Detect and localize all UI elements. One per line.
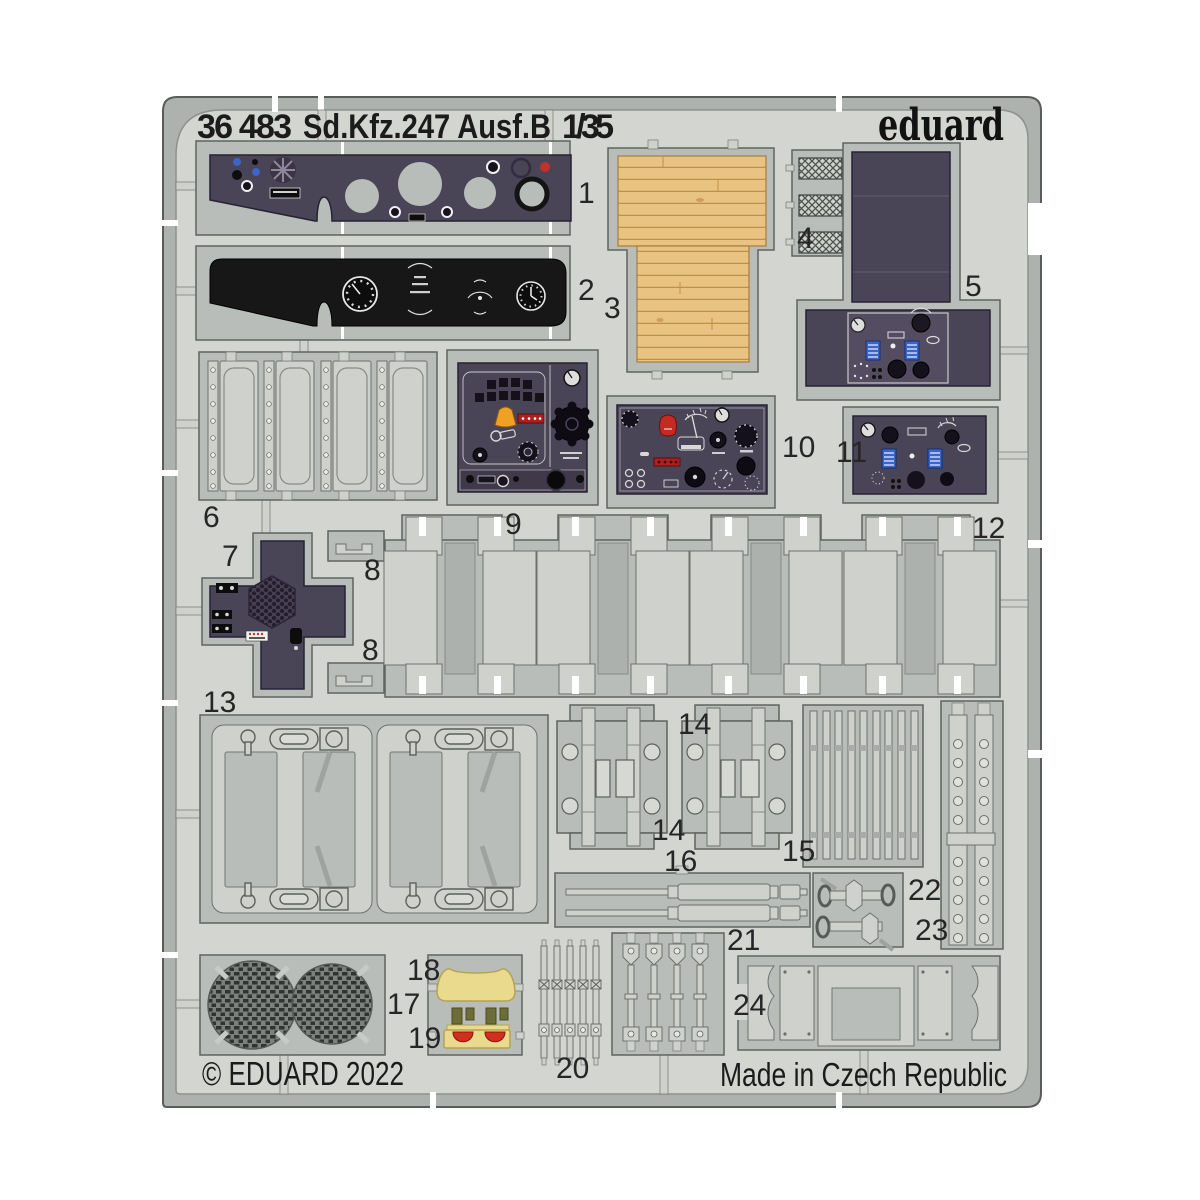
part-3-wood-panel: [608, 140, 774, 379]
part-10-radio-face: [607, 396, 775, 508]
made-in-text: Made in Czech Republic: [720, 1056, 1007, 1093]
part-13-seat-frames: [200, 715, 548, 923]
part-label-23: 23: [915, 914, 948, 947]
part-23-drilled-strips: [941, 701, 1003, 949]
part-12-rib-band: [384, 515, 1000, 697]
part-label-13: 13: [203, 686, 236, 719]
part-label-14-top: 14: [678, 708, 711, 741]
part-label-24: 24: [733, 989, 766, 1022]
part-label-17: 17: [387, 988, 420, 1021]
part-label-8-bottom: 8: [362, 634, 379, 667]
part-label-19: 19: [408, 1022, 441, 1055]
fret-sheet: 36 483 Sd.Kfz.247 Ausf.B 1/35 eduard: [160, 95, 1044, 1109]
part-label-11: 11: [836, 436, 867, 469]
part-label-20: 20: [556, 1052, 589, 1085]
part-label-18: 18: [407, 954, 440, 987]
part-1-instrument-panel: [196, 141, 571, 235]
part-24-bracket-plate: [726, 956, 1000, 1050]
part-21-pin-strips: [612, 933, 724, 1055]
fret-canvas: 36 483 Sd.Kfz.247 Ausf.B 1/35 eduard: [0, 0, 1200, 1200]
part-label-5: 5: [965, 270, 982, 303]
part-label-4: 4: [797, 222, 814, 255]
part-17-mesh-discs: [200, 955, 385, 1055]
part-9-radio-face: [447, 350, 598, 505]
part-15-slat-grille: [803, 705, 923, 867]
part-label-3: 3: [604, 292, 621, 325]
photoetch-sheet-image: 36 483 Sd.Kfz.247 Ausf.B 1/35 eduard: [0, 0, 1200, 1200]
parts-18-19-painted: [428, 955, 524, 1055]
part-label-2: 2: [578, 274, 595, 307]
part-label-9: 9: [505, 508, 522, 541]
part-22-lever-assemblies: [813, 873, 903, 950]
part-label-12: 12: [972, 512, 1005, 545]
copyright-text: © EDUARD 2022: [202, 1055, 404, 1092]
part-label-22: 22: [908, 874, 941, 907]
part-label-1: 1: [578, 177, 595, 210]
part-label-16: 16: [664, 845, 697, 878]
part-label-15: 15: [782, 835, 815, 868]
part-6-slat-panels: [199, 352, 437, 500]
part-label-21: 21: [727, 924, 760, 957]
part-2-instrument-panel-black: [196, 246, 570, 340]
part-label-10: 10: [782, 431, 815, 464]
part-label-7: 7: [222, 540, 239, 573]
part-label-8-top: 8: [364, 554, 381, 587]
part-label-14-bottom: 14: [652, 814, 685, 847]
part-18-yellow-backrest: [437, 969, 515, 1001]
part-label-6: 6: [203, 501, 220, 534]
